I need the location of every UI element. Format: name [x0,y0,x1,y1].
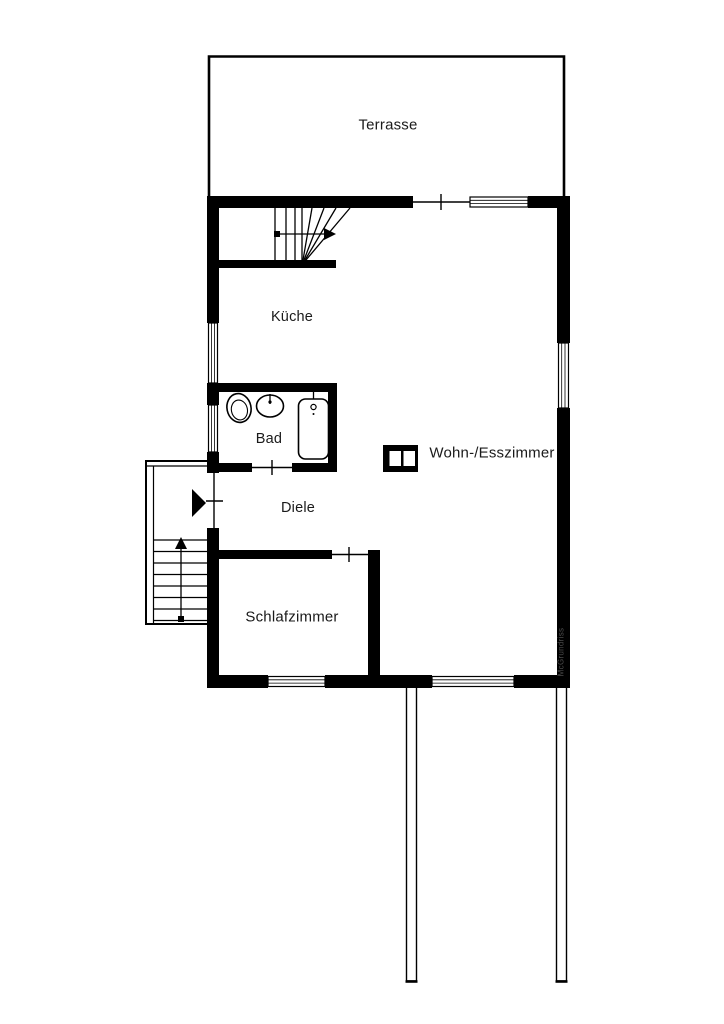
room-label-living: Wohn-/Esszimmer [429,445,554,462]
sink-icon [257,394,284,417]
interior-staircase [274,208,350,260]
toilet-icon [224,391,254,424]
exterior-landing-outline [146,461,207,624]
lower-level-lines [406,688,568,982]
window-bedroom [268,677,325,687]
watermark-text: McGrundriss [557,628,566,677]
lower-wall-line-right [557,688,567,981]
wall-bath-bottom-right [292,463,337,472]
bathtub-icon [299,392,329,459]
room-label-hall: Diele [281,500,315,516]
wall-below-stairs [219,260,336,268]
wall-left-1 [207,196,219,323]
wall-bath-bottom-left [207,463,252,472]
floor-plan: Terrasse Küche Bad Diele Wohn-/Esszimmer… [0,0,724,1024]
wall-bath-top [219,383,337,392]
lower-wall-line-left [407,688,417,981]
room-label-kitchen: Küche [271,309,313,325]
wall-bedroom-top [207,550,332,559]
room-label-bedroom: Schlafzimmer [245,609,338,626]
wall-right-1 [557,196,570,343]
fireplace-icon [383,445,418,472]
wall-top-left [207,196,413,208]
door-openings [206,194,470,562]
wall-left-2 [207,383,219,405]
window-living-right [559,343,569,408]
stair-direction-arrow [274,228,336,240]
exterior-stair-treads [154,540,208,621]
room-label-terrace: Terrasse [358,117,417,134]
room-label-bath: Bad [256,431,282,447]
bath-fixtures [224,391,328,459]
window-kitchen [209,323,218,383]
window-bath [209,405,218,452]
wall-bedroom-right [368,550,380,687]
wall-bottom-3 [514,675,570,688]
window-terrace [470,197,528,207]
entrance-arrow-icon [192,489,206,517]
window-living-bottom [432,677,514,687]
floor-plan-linework [0,0,724,1024]
exterior-stairs [146,461,207,624]
wall-bottom-1 [207,675,268,688]
wall-bath-right [328,383,337,472]
